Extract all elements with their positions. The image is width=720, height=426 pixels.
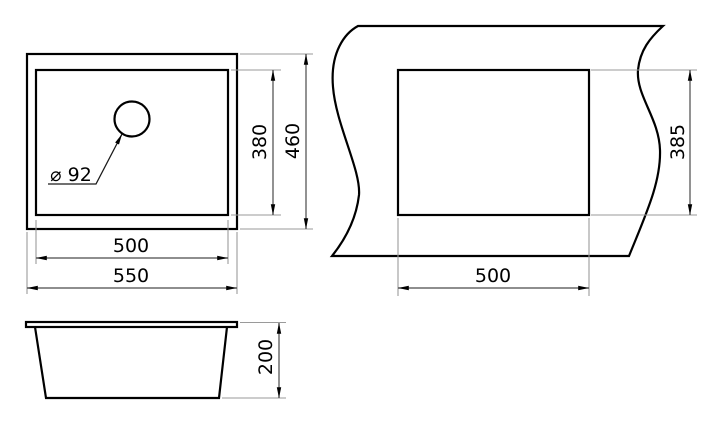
side-view: 200 [26, 322, 286, 398]
sink-outer-rim-outline [27, 54, 237, 229]
top-view: ⌀ 92 380 460 500 550 [27, 54, 313, 294]
cutout-view: 385 500 [332, 26, 697, 296]
dim-label-cutout-width: 500 [475, 265, 511, 287]
dim-label-inner-height: 380 [249, 124, 271, 160]
drain-diameter-label: ⌀ 92 [50, 164, 92, 186]
sink-bowl-outline [36, 70, 228, 215]
technical-drawing-canvas: ⌀ 92 380 460 500 550 [0, 0, 720, 426]
dim-label-depth: 200 [255, 339, 277, 375]
sink-drawing-svg: ⌀ 92 380 460 500 550 [0, 0, 720, 426]
dim-label-outer-height: 460 [282, 123, 304, 159]
sink-body-profile [35, 327, 227, 398]
sink-rim-profile [26, 322, 237, 327]
countertop-break-outline [332, 26, 663, 256]
drain-hole-circle [115, 102, 150, 137]
dim-label-inner-width: 500 [113, 235, 149, 257]
dim-label-outer-width: 550 [113, 265, 149, 287]
dim-label-cutout-height: 385 [667, 124, 689, 160]
cutout-rectangle [398, 70, 589, 215]
